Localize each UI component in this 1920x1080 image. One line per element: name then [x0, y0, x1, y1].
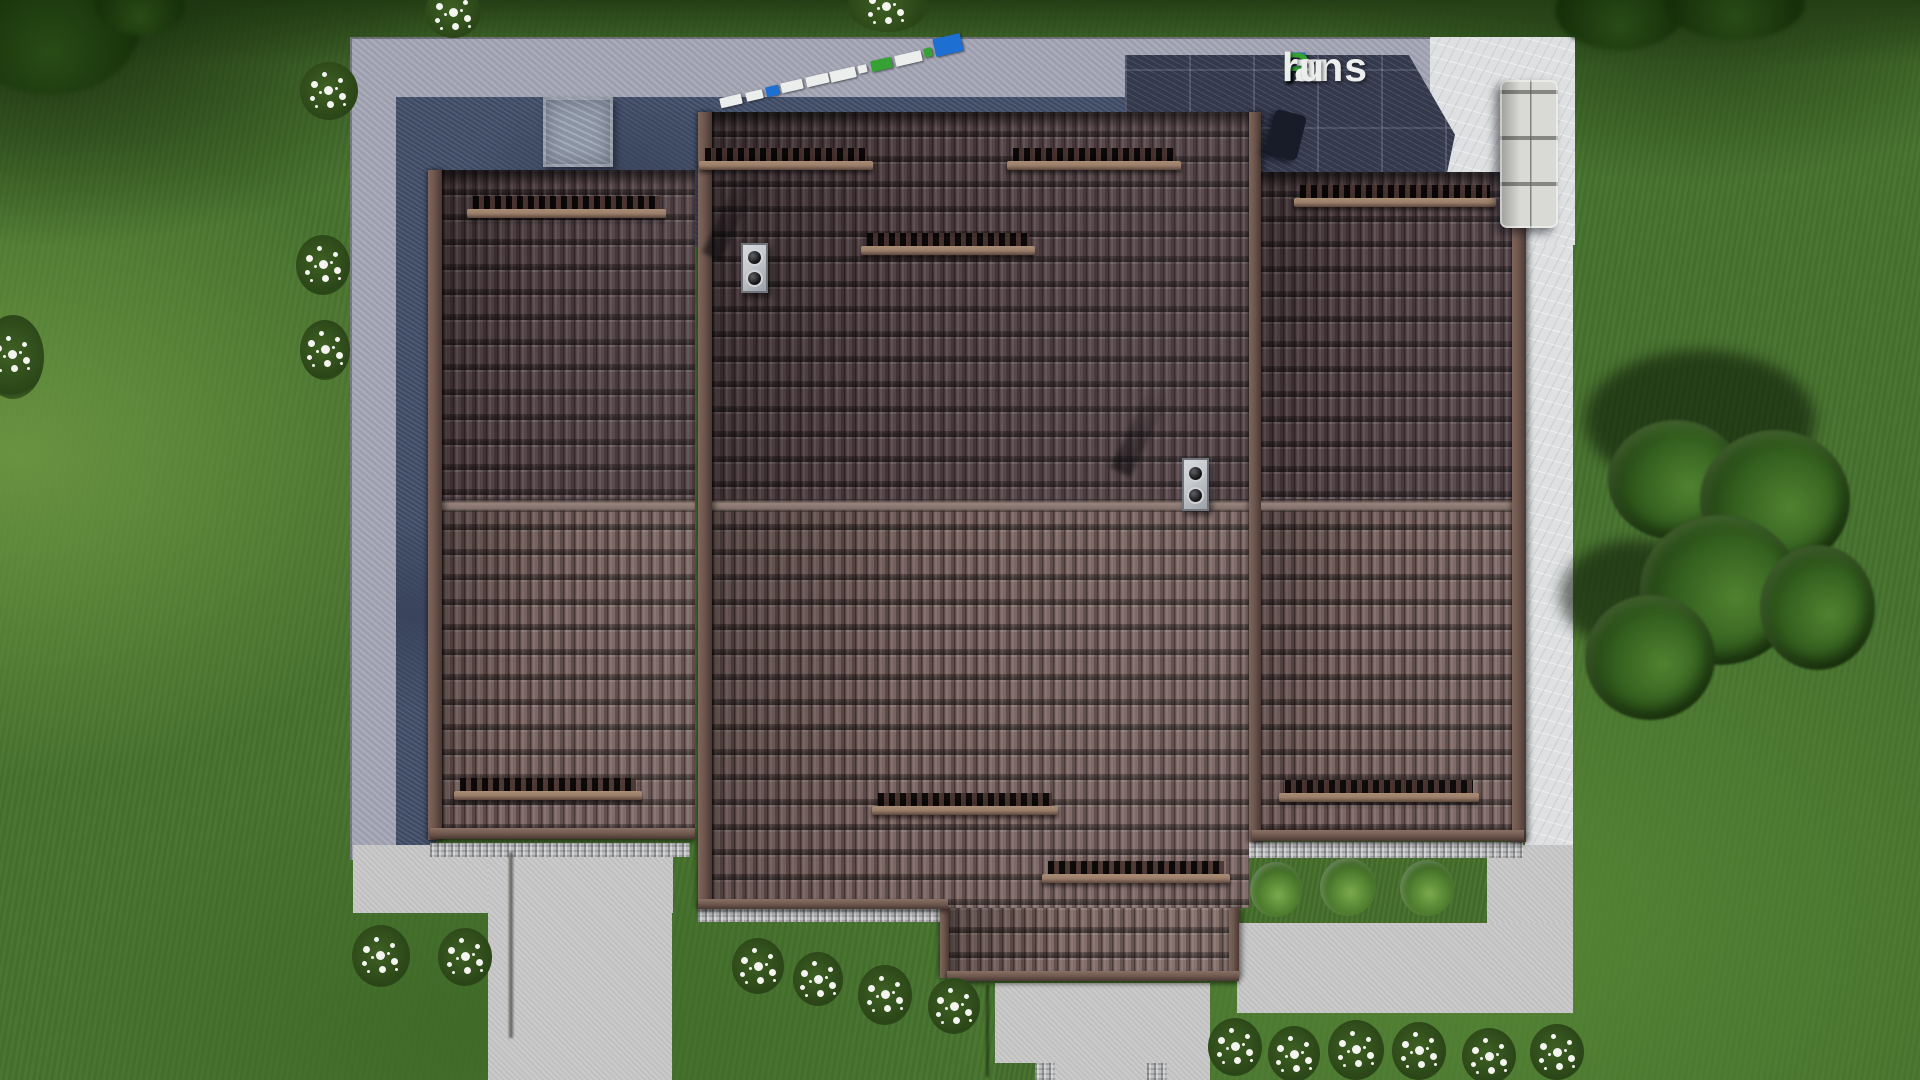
flower-bush — [300, 62, 358, 120]
snow-guard-center-mid — [867, 233, 1029, 257]
plot-apron-left — [350, 97, 396, 860]
roof-extension-eave-fascia — [947, 971, 1239, 981]
flower-bush — [1392, 1022, 1446, 1080]
tree-cluster — [1760, 545, 1875, 670]
roof-valley-center-right — [1249, 112, 1261, 842]
flower-bush — [928, 978, 980, 1034]
gravel-strip-center-eave — [698, 908, 947, 922]
gravel-strip-right-eave — [1240, 842, 1523, 858]
stone-paver-square — [543, 97, 613, 167]
flower-bush — [732, 938, 784, 994]
snow-guard-center-low-left — [878, 793, 1052, 817]
roof-left-fascia — [428, 170, 442, 840]
downspout-shadow-center — [986, 985, 989, 1077]
shrub — [1250, 862, 1302, 917]
chimney-1-flue-top — [746, 249, 763, 266]
outdoor-sofa — [1500, 80, 1558, 228]
roof-right-fascia — [1512, 172, 1526, 842]
roof-left-wing-upper-slope — [442, 170, 695, 505]
aerial-house-render: FixPlans.ru — [0, 0, 1920, 1080]
right-walkway — [1525, 245, 1573, 845]
snow-guard-left-bottom — [460, 778, 636, 802]
roof-right-ridge — [1261, 499, 1512, 512]
tree-top-right-2 — [1665, 0, 1805, 40]
snow-guard-right-bottom — [1285, 780, 1473, 804]
roof-porch-extension — [947, 908, 1229, 978]
roof-right-wing-upper-slope — [1261, 172, 1512, 505]
flower-bush — [300, 320, 350, 380]
flower-bush — [1462, 1028, 1516, 1080]
chimney-2 — [1182, 458, 1209, 511]
chimney-1 — [741, 243, 768, 293]
snow-guard-right-top — [1300, 185, 1490, 209]
ground-logo-slab — [923, 47, 933, 58]
flower-bush — [1208, 1018, 1262, 1076]
roof-right-eave-fascia — [1252, 830, 1524, 841]
downspout-shadow-left — [509, 852, 513, 1038]
roof-extension-right-fascia — [1229, 908, 1239, 978]
flower-bush — [848, 0, 928, 32]
roof-left-eave-fascia — [430, 828, 695, 839]
watermark-letter: ru — [1282, 44, 1325, 91]
snow-guard-left-top — [473, 196, 660, 220]
flower-bush — [1328, 1020, 1384, 1080]
shrub — [1400, 860, 1454, 916]
porch-pier-right — [1147, 1063, 1167, 1080]
flower-bush — [793, 952, 843, 1006]
flower-bush — [425, 0, 481, 38]
tree-cluster — [1585, 595, 1715, 720]
flower-bush — [1530, 1024, 1584, 1080]
shrub — [1320, 858, 1376, 916]
walkway-bottom-right — [1237, 923, 1573, 1013]
roof-center-eave-fascia — [698, 899, 948, 909]
flower-bush — [296, 235, 350, 295]
flower-bush — [0, 315, 44, 399]
roof-center-lower-slope — [712, 505, 1249, 908]
chimney-2-flue-bottom — [1187, 487, 1204, 504]
chimney-1-flue-bottom — [746, 270, 763, 287]
snow-guard-center-top-left — [705, 148, 867, 172]
roof-left-ridge — [442, 499, 695, 512]
snow-guard-center-top-right — [1013, 148, 1175, 172]
gravel-strip-left-eave — [430, 843, 690, 857]
flower-bush — [352, 925, 410, 987]
chimney-2-flue-top — [1187, 465, 1204, 482]
roof-extension-left-fascia — [940, 908, 949, 978]
snow-guard-center-low-right — [1048, 861, 1224, 885]
porch-pad-corner-grass — [995, 1063, 1035, 1080]
front-walkway — [488, 845, 672, 1080]
flower-bush — [1268, 1026, 1320, 1080]
flower-bush — [438, 928, 492, 986]
roof-center-ridge — [712, 499, 1249, 512]
porch-pier-left — [1035, 1063, 1055, 1080]
roof-center-left-fascia — [698, 112, 712, 908]
flower-bush — [858, 965, 912, 1025]
